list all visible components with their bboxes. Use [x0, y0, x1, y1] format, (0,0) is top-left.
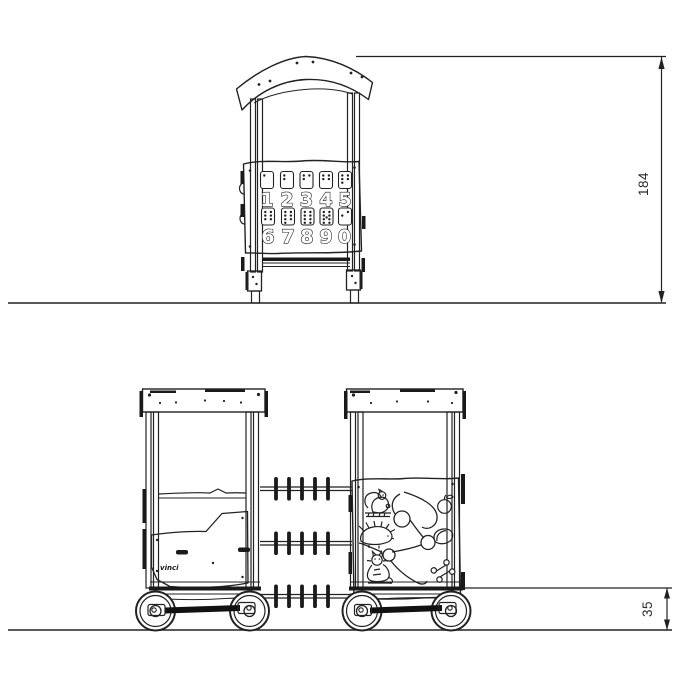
- screw-dot: [241, 576, 243, 578]
- screw-dot: [451, 402, 453, 404]
- connector-tick: [313, 585, 317, 609]
- digit-5: 5: [338, 189, 351, 211]
- screw-dot: [212, 562, 214, 564]
- floor-deck-edge: [262, 258, 350, 267]
- digits-row1: 1 2 3 4 5: [260, 189, 351, 211]
- screw-dot: [240, 401, 242, 403]
- card-dot: [264, 218, 266, 220]
- arrowhead-down-icon: [658, 291, 664, 303]
- panel-board: [352, 478, 461, 599]
- seat-back-board: [152, 512, 249, 588]
- screw-dot: [361, 76, 364, 79]
- card-dot: [304, 222, 306, 224]
- connector-tick: [274, 532, 278, 556]
- card-dot: [328, 222, 330, 224]
- connector-tick: [287, 585, 291, 609]
- bone-shaft: [436, 565, 451, 578]
- side-elevation-view: vinci: [8, 389, 672, 631]
- panel-tab: [349, 495, 353, 512]
- playground-train-drawing: 184: [0, 0, 680, 680]
- right-cart: [343, 389, 471, 631]
- post: [254, 412, 259, 588]
- platform-edge: [349, 587, 463, 591]
- path-loop: [421, 536, 435, 550]
- screw-dot: [159, 402, 161, 404]
- panel-tab: [362, 216, 366, 229]
- card-dot: [328, 178, 330, 180]
- connector-tick: [287, 477, 291, 501]
- card-dot: [323, 218, 325, 220]
- nut-icon: [434, 529, 453, 544]
- arrowhead-down-icon: [664, 620, 670, 631]
- ground-anchor: [351, 290, 359, 303]
- card-dot: [341, 178, 343, 180]
- hedgehog-eye: [387, 535, 389, 537]
- path-loop: [383, 549, 395, 561]
- panel-tab: [461, 572, 465, 590]
- card-dot: [304, 214, 306, 216]
- screw-dot: [451, 483, 454, 486]
- screw-dot: [258, 83, 261, 86]
- card-dot: [323, 211, 325, 213]
- screw-dot: [249, 245, 252, 248]
- screw-dot: [353, 166, 356, 169]
- cat-eye: [379, 558, 381, 560]
- card-dot: [328, 174, 330, 176]
- apple-icon: [438, 495, 453, 513]
- dimension-label-platform: 35: [640, 601, 655, 617]
- cat-eye: [374, 558, 376, 560]
- connector-tick: [274, 585, 278, 609]
- roof-plank-edge: [150, 391, 176, 394]
- flex-connector: [260, 585, 352, 609]
- screw-dot: [156, 539, 158, 541]
- connector-tick: [300, 532, 304, 556]
- flex-connector: [260, 477, 352, 501]
- screw-dot: [351, 275, 353, 277]
- roof-side-tab: [344, 391, 348, 419]
- path-loop: [394, 511, 410, 527]
- card-dot: [304, 218, 306, 220]
- card-dot: [322, 174, 324, 176]
- card-dot: [303, 178, 305, 180]
- screw-dot: [204, 399, 206, 401]
- roof-side-tab: [140, 391, 144, 417]
- foot-bracket: [347, 270, 361, 290]
- wheel-hub: [357, 606, 368, 617]
- card-dot: [284, 211, 286, 213]
- card-dot: [290, 211, 292, 213]
- handle-slot: [176, 550, 188, 555]
- handle-slot: [238, 548, 250, 553]
- screw-dot: [223, 400, 225, 402]
- screw-dot: [312, 61, 315, 64]
- apple-body: [438, 500, 452, 514]
- card-dot: [263, 174, 265, 176]
- roof-side-tab: [463, 391, 467, 419]
- card-dot: [309, 222, 311, 224]
- technical-drawing-sheet: 184: [0, 0, 680, 680]
- connector-tick: [287, 532, 291, 556]
- card-dot: [328, 214, 330, 216]
- card-dot: [309, 218, 311, 220]
- screw-dot: [370, 402, 372, 404]
- screw-dot: [296, 62, 299, 65]
- hedgehog-body: [361, 527, 392, 545]
- screw-dot: [156, 570, 158, 572]
- card-dot: [322, 178, 324, 180]
- card-dot: [325, 216, 327, 218]
- card-dot: [323, 222, 325, 224]
- path-curve: [391, 561, 427, 584]
- card-dot: [283, 174, 285, 176]
- digit-0: 0: [338, 226, 351, 248]
- screw-dot: [357, 486, 360, 489]
- coupling-rod: [165, 605, 240, 614]
- domino-card: [339, 172, 352, 189]
- digit-4: 4: [319, 189, 332, 211]
- activity-panel: [352, 478, 461, 599]
- nut-line: [437, 531, 446, 542]
- bone-knob: [430, 567, 437, 574]
- connector-tick: [300, 585, 304, 609]
- screw-dot: [255, 283, 257, 285]
- left-cart-mid-rail: [159, 489, 246, 498]
- card-dot: [264, 214, 266, 216]
- connector-tick: [300, 477, 304, 501]
- digit-1: 1: [260, 189, 273, 211]
- card-dot: [341, 214, 343, 216]
- squirrel-icon: [365, 490, 391, 517]
- dimension-platform-height: 35: [461, 588, 672, 630]
- card-dot: [290, 218, 292, 220]
- screw-dot: [249, 169, 252, 172]
- seat-panel: vinci: [152, 512, 251, 588]
- card-dot: [341, 174, 343, 176]
- connector-tick: [274, 477, 278, 501]
- card-dot: [290, 214, 292, 216]
- cat-icon: [367, 552, 392, 584]
- cat-stripes: [373, 569, 381, 575]
- card-dot: [308, 174, 310, 176]
- roof-plank-edge: [205, 390, 245, 393]
- screw-dot: [350, 72, 353, 75]
- card-dot: [309, 214, 311, 216]
- roof-underside: [254, 89, 352, 103]
- domino-card: [320, 172, 333, 189]
- squirrel-eye: [382, 494, 384, 496]
- card-dot: [270, 214, 272, 216]
- card-dot: [347, 178, 349, 180]
- connector-tick: [313, 477, 317, 501]
- screw-dot: [148, 393, 151, 396]
- panel-tab: [241, 257, 245, 271]
- right-cart-roof: [344, 389, 466, 419]
- post-anchors: [246, 270, 363, 303]
- panel-tab: [143, 489, 147, 523]
- card-dot: [347, 211, 349, 213]
- platform-edge: [149, 587, 261, 591]
- card-dot: [323, 214, 325, 216]
- roof-side-tab: [265, 391, 269, 417]
- left-cart: vinci: [136, 389, 269, 631]
- rail-top: [159, 489, 246, 494]
- path-curve: [410, 520, 424, 538]
- panel-tab: [349, 552, 353, 574]
- post: [146, 412, 151, 588]
- log-base: [365, 513, 391, 517]
- panel-tab: [241, 171, 245, 184]
- card-dot: [304, 211, 306, 213]
- arrowhead-up-icon: [658, 57, 664, 69]
- digits-row2: 6 7 8 9 0: [261, 226, 351, 248]
- card-dot: [347, 174, 349, 176]
- card-dot: [264, 211, 266, 213]
- ground-anchor: [252, 291, 260, 303]
- winding-path-icon: [359, 492, 437, 584]
- digit-3: 3: [300, 189, 313, 211]
- wheel-hub: [446, 606, 457, 617]
- cat-whiskers: [367, 561, 387, 562]
- domino-card: [261, 172, 274, 189]
- screw-dot: [252, 276, 254, 278]
- card-dot: [341, 182, 343, 184]
- card-dot: [284, 218, 286, 220]
- screw-dot: [427, 400, 429, 402]
- panel-tab: [241, 204, 245, 217]
- wheel-hub: [244, 606, 255, 617]
- card-dot: [283, 178, 285, 180]
- screw-dot: [454, 391, 457, 394]
- domino-cards-row1: [261, 172, 352, 189]
- connector-tick: [326, 532, 330, 556]
- card-dot: [309, 211, 311, 213]
- bone-knob: [443, 559, 450, 566]
- screw-dot: [269, 80, 272, 83]
- digit-2: 2: [280, 189, 293, 211]
- roof-plank-edge: [350, 391, 370, 394]
- connector-tick: [313, 532, 317, 556]
- card-dot: [284, 214, 286, 216]
- card-dot: [284, 222, 286, 224]
- roof-plank-edge: [400, 390, 435, 393]
- path-curve: [392, 545, 421, 552]
- dimension-overall-height: 184: [356, 57, 666, 304]
- screw-dot: [353, 243, 356, 246]
- deck-plank-edge: [262, 258, 350, 262]
- flex-connector: [260, 532, 352, 556]
- dimension-label-height: 184: [636, 172, 651, 196]
- brand-logo: vinci: [160, 564, 179, 572]
- domino-card: [281, 172, 294, 189]
- card-dot: [270, 218, 272, 220]
- front-elevation-view: 184: [8, 57, 666, 304]
- screw-dot: [352, 393, 355, 396]
- digit-6: 6: [261, 226, 274, 248]
- connector-tick: [326, 585, 330, 609]
- screw-dot: [175, 401, 177, 403]
- panel-tab: [362, 258, 366, 272]
- panel-tab: [143, 529, 147, 569]
- screw-dot: [354, 282, 356, 284]
- screw-dot: [257, 393, 260, 396]
- post: [251, 99, 256, 272]
- screw-dot: [396, 400, 398, 402]
- panel-tab: [461, 474, 465, 504]
- connector-tick: [326, 477, 330, 501]
- card-dot: [328, 218, 330, 220]
- post: [154, 412, 159, 588]
- foot-bracket: [248, 271, 262, 291]
- screw-dot: [241, 517, 243, 519]
- digit-9: 9: [319, 226, 332, 248]
- card-dot: [328, 211, 330, 213]
- arrowhead-up-icon: [664, 588, 670, 599]
- cat-body: [367, 565, 389, 582]
- digit-8: 8: [300, 226, 313, 248]
- card-dot: [270, 211, 272, 213]
- digit-7: 7: [281, 226, 294, 248]
- flexible-connectors: [260, 477, 352, 608]
- squirrel-head: [378, 492, 386, 500]
- left-cart-posts: [146, 412, 259, 588]
- post: [358, 412, 363, 588]
- domino-card: [300, 172, 313, 189]
- card-dot: [303, 174, 305, 176]
